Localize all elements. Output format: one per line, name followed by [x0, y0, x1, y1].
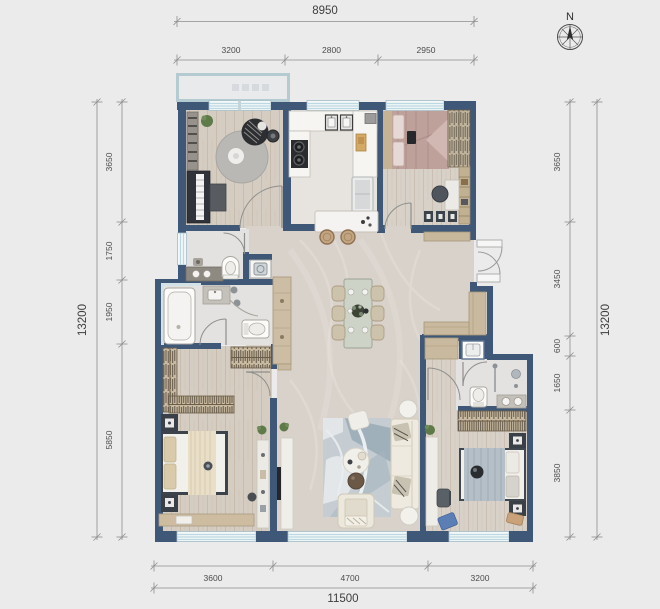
svg-text:600: 600 — [552, 339, 562, 353]
svg-text:3650: 3650 — [552, 152, 562, 171]
svg-text:2800: 2800 — [322, 45, 341, 55]
svg-text:3600: 3600 — [204, 573, 223, 583]
svg-text:13200: 13200 — [600, 304, 612, 336]
svg-text:1650: 1650 — [552, 373, 562, 392]
svg-text:11500: 11500 — [327, 593, 358, 605]
svg-text:3850: 3850 — [552, 463, 562, 482]
svg-text:N: N — [566, 11, 574, 23]
svg-text:3450: 3450 — [552, 269, 562, 288]
svg-text:3650: 3650 — [104, 152, 114, 171]
svg-text:2950: 2950 — [417, 45, 436, 55]
svg-text:3200: 3200 — [471, 573, 490, 583]
svg-text:1950: 1950 — [104, 302, 114, 321]
svg-text:5850: 5850 — [104, 430, 114, 449]
svg-text:8950: 8950 — [312, 5, 338, 17]
svg-text:4700: 4700 — [341, 573, 360, 583]
svg-text:3200: 3200 — [222, 45, 241, 55]
svg-text:1750: 1750 — [104, 241, 114, 260]
svg-text:13200: 13200 — [77, 304, 89, 336]
